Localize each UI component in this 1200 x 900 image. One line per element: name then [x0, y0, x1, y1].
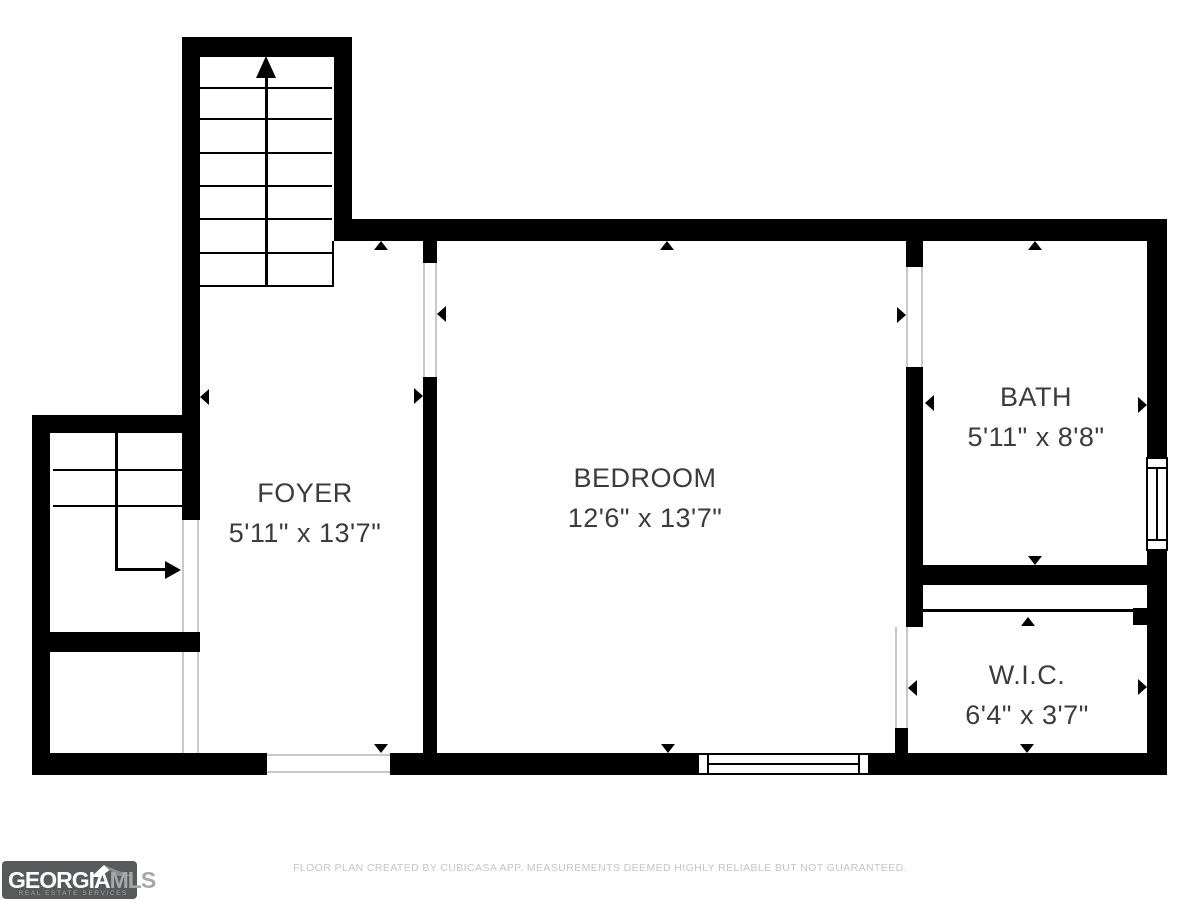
opening-line [921, 267, 923, 367]
room-dimensions: 5'11" x 8'8" [967, 417, 1104, 457]
door-marker-icon [414, 388, 423, 404]
exterior-wall [390, 753, 697, 775]
door-marker-icon [200, 389, 209, 405]
exterior-wall [334, 219, 1167, 241]
door-marker-icon [1138, 679, 1147, 695]
exterior-wall [182, 37, 200, 520]
door-marker-icon [908, 680, 917, 696]
door-marker-icon [661, 744, 675, 753]
closet-door-line [920, 609, 1133, 612]
room-name: BEDROOM [568, 458, 723, 498]
interior-wall [906, 367, 923, 627]
interior-wall [423, 241, 437, 263]
stair-step-line [53, 505, 182, 507]
window-symbol [1146, 457, 1168, 551]
opening-line [197, 652, 199, 753]
door-marker-icon [437, 306, 446, 322]
interior-wall [1133, 608, 1167, 625]
opening-line [423, 263, 425, 377]
room-name: W.I.C. [965, 655, 1089, 695]
opening-line [906, 267, 908, 367]
interior-wall [906, 241, 923, 267]
stair-step-line [53, 469, 182, 471]
exterior-wall [182, 37, 352, 57]
door-marker-icon [925, 395, 934, 411]
door-marker-icon [1021, 617, 1035, 626]
room-dimensions: 12'6" x 13'7" [568, 498, 723, 538]
door-marker-icon [1138, 397, 1147, 413]
room-name: FOYER [229, 473, 382, 513]
door-marker-icon [374, 241, 388, 250]
floor-plan: FOYER 5'11" x 13'7" BEDROOM 12'6" x 13'7… [0, 0, 1200, 900]
interior-wall [423, 377, 437, 753]
exterior-wall [32, 415, 50, 775]
exterior-wall [334, 37, 352, 241]
room-label: BEDROOM 12'6" x 13'7" [568, 458, 723, 538]
room-name: BATH [967, 377, 1104, 417]
door-marker-icon [660, 241, 674, 250]
stair-edge-line [332, 241, 334, 287]
room-dimensions: 6'4" x 3'7" [965, 695, 1089, 735]
door-marker-icon [374, 744, 388, 753]
room-label: FOYER 5'11" x 13'7" [229, 473, 382, 553]
opening-line [182, 520, 184, 632]
logo-tagline: REAL ESTATE SERVICES [19, 890, 128, 897]
exterior-wall [32, 753, 267, 775]
opening-line [895, 627, 897, 728]
room-label: W.I.C. 6'4" x 3'7" [965, 655, 1089, 735]
opening-line [197, 520, 199, 632]
door-marker-icon [1028, 241, 1042, 250]
interior-wall [895, 728, 908, 753]
footer-disclaimer: FLOOR PLAN CREATED BY CUBICASA APP. MEAS… [0, 862, 1200, 874]
opening-line [267, 771, 390, 773]
room-dimensions: 5'11" x 13'7" [229, 513, 382, 553]
opening-line [267, 754, 390, 756]
window-symbol [697, 753, 870, 775]
interior-wall [923, 565, 1167, 585]
interior-wall [50, 632, 200, 652]
opening-line [182, 652, 184, 753]
door-marker-icon [1028, 556, 1042, 565]
exterior-wall [32, 415, 182, 433]
door-marker-icon [897, 307, 906, 323]
door-marker-icon [1020, 744, 1034, 753]
room-label: BATH 5'11" x 8'8" [967, 377, 1104, 457]
exterior-wall [870, 753, 1167, 775]
opening-line [906, 627, 908, 728]
